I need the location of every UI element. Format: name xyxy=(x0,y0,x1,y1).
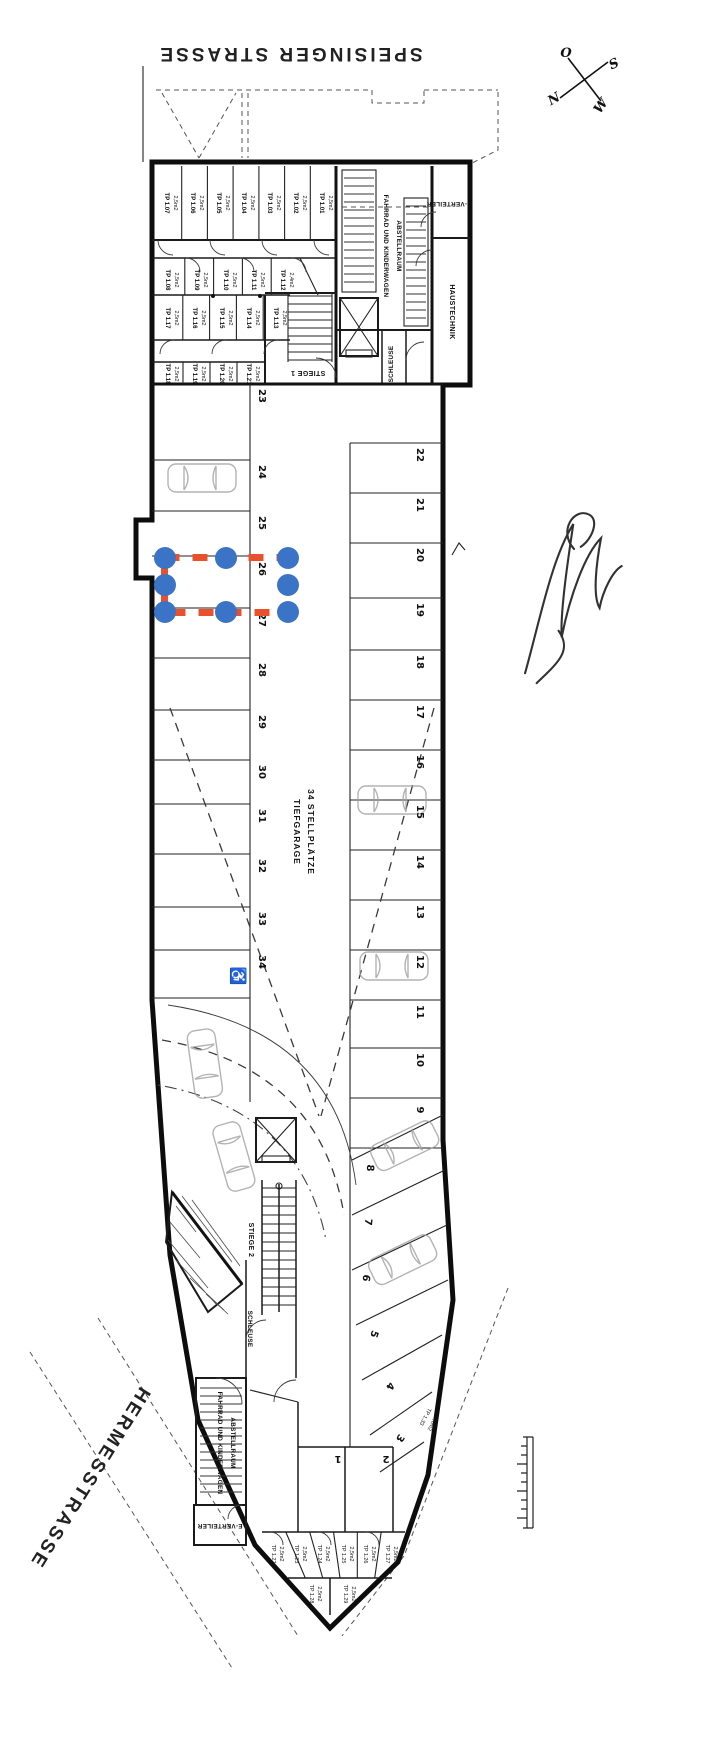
svg-text:TP 1.08: TP 1.08 xyxy=(164,270,170,292)
svg-text:10: 10 xyxy=(414,1053,425,1067)
svg-text:26: 26 xyxy=(256,562,267,576)
schleuse-bottom-label: SCHLEUSE xyxy=(246,1311,253,1348)
svg-text:TP 1.11: TP 1.11 xyxy=(250,270,256,291)
svg-text:TP 1.12: TP 1.12 xyxy=(279,270,285,292)
svg-text:5: 5 xyxy=(367,1329,380,1339)
storage-row-d: TP 1.18 2,5m2 TP 1.19 2,5m2 TP 1.20 2,5m… xyxy=(164,364,260,386)
svg-text:24: 24 xyxy=(256,465,267,479)
svg-text:28: 28 xyxy=(256,663,267,677)
svg-text:2,5m2: 2,5m2 xyxy=(254,311,260,326)
svg-text:TP 1.06: TP 1.06 xyxy=(189,193,195,215)
svg-text:2,5m2: 2,5m2 xyxy=(348,1547,354,1562)
svg-text:TP 1.01: TP 1.01 xyxy=(318,193,324,215)
svg-text:TP 1.13: TP 1.13 xyxy=(272,308,278,330)
bike-room-top-label-2: ABSTELLRAUM xyxy=(395,220,402,271)
floorplan-drawing: SPEISINGER STRASSE O S N W xyxy=(0,0,722,1742)
compass-west: W xyxy=(591,95,612,117)
svg-text:2,5m2: 2,5m2 xyxy=(281,311,287,326)
svg-text:12: 12 xyxy=(414,955,425,969)
svg-text:TP 1.22: TP 1.22 xyxy=(270,1545,276,1564)
svg-text:14: 14 xyxy=(414,855,425,869)
svg-text:6: 6 xyxy=(359,1274,371,1283)
svg-text:34: 34 xyxy=(256,955,267,969)
street-name-bottom: HERMESSTRASSE xyxy=(25,1383,154,1572)
svg-text:1: 1 xyxy=(334,1453,341,1464)
scale-bar xyxy=(517,1437,533,1528)
svg-text:30: 30 xyxy=(256,765,267,779)
svg-text:TP 1.02: TP 1.02 xyxy=(292,193,298,215)
storage-row-a: TP 1.07 2,5m2 TP 1.06 2,5m2 TP 1.05 2,5m… xyxy=(163,193,333,215)
svg-text:22: 22 xyxy=(414,448,425,462)
selection-handle-se[interactable] xyxy=(277,601,299,623)
svg-text:8: 8 xyxy=(364,1164,375,1171)
e-verteiler-bottom-label: E-VERTEILER xyxy=(197,1522,242,1529)
svg-text:2,5m2: 2,5m2 xyxy=(324,1547,330,1562)
svg-text:29: 29 xyxy=(256,715,267,729)
svg-text:2,5m2: 2,5m2 xyxy=(301,1547,307,1562)
selection-handle-nw[interactable] xyxy=(154,547,176,569)
compass-icon: O S N W xyxy=(544,46,621,117)
svg-text:TP 1.19: TP 1.19 xyxy=(191,364,197,386)
svg-text:TP 1.18: TP 1.18 xyxy=(164,364,170,386)
svg-text:4: 4 xyxy=(383,1380,396,1391)
e-verteiler-top-label: E-VERTEILER xyxy=(426,200,471,207)
svg-text:TP 1.07: TP 1.07 xyxy=(163,193,169,215)
svg-text:TP 1.24: TP 1.24 xyxy=(316,1545,322,1564)
staircase-2 xyxy=(262,1180,296,1315)
svg-text:13: 13 xyxy=(414,905,425,919)
svg-text:TP 1.20: TP 1.20 xyxy=(218,364,224,386)
stiege1-label: STIEGE 1 xyxy=(291,369,326,376)
svg-text:11: 11 xyxy=(414,1005,425,1019)
elevator-1 xyxy=(340,298,378,357)
svg-text:TP 1.27: TP 1.27 xyxy=(384,1545,390,1564)
svg-text:TP 1.14: TP 1.14 xyxy=(245,308,251,330)
svg-text:2,5m2: 2,5m2 xyxy=(327,196,333,211)
ghost-cars xyxy=(168,464,441,1287)
svg-text:33: 33 xyxy=(256,912,267,926)
svg-text:TP 1.23: TP 1.23 xyxy=(293,1545,299,1564)
svg-text:2,5m2: 2,5m2 xyxy=(316,1587,322,1602)
selection-handle-w[interactable] xyxy=(154,574,176,596)
bike-room-top-label-1: FAHRRAD UND KINDERWAGEN xyxy=(382,195,389,298)
svg-text:18: 18 xyxy=(414,655,425,669)
svg-text:TP 1.16: TP 1.16 xyxy=(191,308,197,330)
svg-text:32: 32 xyxy=(256,859,267,873)
svg-text:2,5m2: 2,5m2 xyxy=(224,196,230,211)
svg-text:9: 9 xyxy=(414,1107,425,1114)
haustechnik-label: HAUSTECHNIK xyxy=(448,284,455,339)
selection-handle-n[interactable] xyxy=(215,547,237,569)
floorplan-page: SPEISINGER STRASSE O S N W xyxy=(0,0,722,1742)
selection-annotation[interactable] xyxy=(154,547,299,623)
parking-numbers-left: 23 24 25 26 27 28 29 30 31 32 33 34 xyxy=(256,389,267,969)
staircase-1 xyxy=(288,293,332,362)
svg-text:17: 17 xyxy=(414,705,425,719)
street-name-top: SPEISINGER STRASSE xyxy=(157,43,422,64)
svg-text:2,5m2: 2,5m2 xyxy=(172,196,178,211)
garage-title: TIEFGARAGE xyxy=(292,799,302,865)
svg-text:2,5m2: 2,5m2 xyxy=(392,1547,398,1562)
svg-text:TP 1.15: TP 1.15 xyxy=(218,308,224,330)
svg-text:15: 15 xyxy=(414,805,425,819)
building-outline xyxy=(136,162,470,1628)
svg-text:7: 7 xyxy=(362,1218,374,1226)
svg-text:2,5m2: 2,5m2 xyxy=(202,273,208,288)
svg-text:2,5m2: 2,5m2 xyxy=(259,273,265,288)
svg-text:TP 1.28: TP 1.28 xyxy=(308,1585,314,1604)
svg-text:2,5m2: 2,5m2 xyxy=(231,273,237,288)
svg-text:TP 1.03: TP 1.03 xyxy=(266,193,272,215)
svg-text:2,5m2: 2,5m2 xyxy=(301,196,307,211)
svg-text:16: 16 xyxy=(414,755,425,769)
svg-text:2,5m2: 2,5m2 xyxy=(249,196,255,211)
svg-text:25: 25 xyxy=(256,516,267,530)
svg-text:2,5m2: 2,5m2 xyxy=(227,311,233,326)
storage-row-b: TP 1.08 2,5m2 TP 1.09 2,5m2 TP 1.10 2,5m… xyxy=(164,270,294,292)
svg-text:TP 1.17: TP 1.17 xyxy=(164,308,170,330)
svg-text:3: 3 xyxy=(393,1432,406,1444)
svg-text:20: 20 xyxy=(414,548,425,562)
selection-handle-ne[interactable] xyxy=(277,547,299,569)
schleuse-top-label: SCHLEUSE xyxy=(388,346,395,383)
compass-north: N xyxy=(544,89,564,109)
svg-text:2,5m2: 2,5m2 xyxy=(200,311,206,326)
svg-text:2,5m2: 2,5m2 xyxy=(278,1547,284,1562)
parking-numbers-right: 22 21 20 19 18 17 16 15 14 13 12 11 10 9 xyxy=(414,448,425,1113)
parking-numbers-bottom: 8 7 6 5 4 3 2 1 xyxy=(334,1164,406,1464)
svg-text:23: 23 xyxy=(256,389,267,403)
svg-text:2,5m2: 2,5m2 xyxy=(254,367,260,382)
svg-text:TP 1.05: TP 1.05 xyxy=(215,193,221,215)
wheelchair-icon: ♿ xyxy=(229,967,247,986)
svg-text:31: 31 xyxy=(256,809,267,823)
svg-text:TP 1.25: TP 1.25 xyxy=(340,1545,346,1564)
bike-room-bottom-label-2: ABSTELLRAUM xyxy=(229,1417,236,1468)
svg-text:21: 21 xyxy=(414,498,425,512)
svg-text:TP 1.26: TP 1.26 xyxy=(362,1545,368,1564)
signature xyxy=(483,506,648,685)
selection-handle-sw[interactable] xyxy=(154,601,176,623)
compass-east: O xyxy=(560,46,572,61)
svg-text:2,5m2: 2,5m2 xyxy=(200,367,206,382)
svg-text:2,5m2: 2,5m2 xyxy=(173,273,179,288)
garage-subtitle: 34 STELLPLÄTZE xyxy=(306,789,316,875)
svg-text:TP 1.29: TP 1.29 xyxy=(342,1585,348,1604)
svg-text:TP 1.21: TP 1.21 xyxy=(245,364,251,386)
compass-south: S xyxy=(607,56,622,74)
svg-text:TP 1.09: TP 1.09 xyxy=(193,270,199,292)
svg-text:19: 19 xyxy=(414,603,425,617)
svg-text:TP 1.04: TP 1.04 xyxy=(240,193,246,215)
bike-room-bottom-label-1: FAHRRAD UND KINDERWAGEN xyxy=(216,1392,223,1495)
svg-text:2: 2 xyxy=(382,1453,389,1464)
svg-text:2,5m2: 2,5m2 xyxy=(350,1587,356,1602)
svg-text:2,5m2: 2,5m2 xyxy=(370,1547,376,1562)
stiege2-label: STIEGE 2 xyxy=(247,1223,254,1258)
selection-handle-e[interactable] xyxy=(277,574,299,596)
svg-text:TP 1.10: TP 1.10 xyxy=(222,270,228,292)
svg-text:2,5m2: 2,5m2 xyxy=(173,367,179,382)
storage-bottom-row: TP 1.22 2,5m2 TP 1.23 2,5m2 TP 1.24 2,5m… xyxy=(270,1407,438,1604)
elevator-2 xyxy=(256,1118,296,1162)
cellar-block-bottom xyxy=(250,1390,392,1615)
svg-text:2,5m2: 2,5m2 xyxy=(173,311,179,326)
selection-handle-s[interactable] xyxy=(215,601,237,623)
svg-text:2,5m2: 2,5m2 xyxy=(275,196,281,211)
svg-text:2,4m2: 2,4m2 xyxy=(288,273,294,288)
svg-text:2,5m2: 2,5m2 xyxy=(198,196,204,211)
revision-mark xyxy=(452,543,465,555)
svg-text:2,5m2: 2,5m2 xyxy=(227,367,233,382)
